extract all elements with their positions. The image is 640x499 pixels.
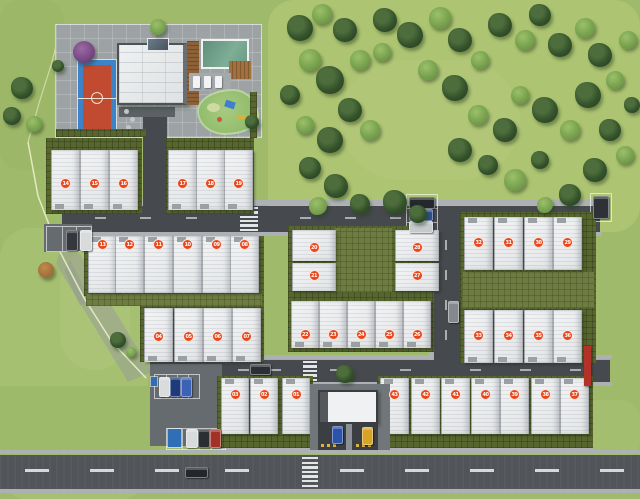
tree	[309, 197, 327, 215]
unit-number-marker[interactable]: 26	[412, 329, 423, 340]
tree	[529, 4, 551, 26]
tree	[324, 174, 348, 198]
unit-number-marker[interactable]: 01	[291, 389, 302, 400]
unit-number-marker[interactable]: 23	[328, 329, 339, 340]
tree	[299, 49, 321, 71]
tree	[429, 7, 451, 29]
tree	[397, 22, 423, 48]
tree	[110, 332, 126, 348]
unit-number-marker[interactable]: 27	[412, 270, 423, 281]
tree	[52, 60, 64, 72]
tree	[409, 205, 427, 223]
tree	[336, 365, 354, 383]
unit-number-marker[interactable]: 34	[503, 330, 514, 341]
unit-number-marker[interactable]: 25	[384, 329, 395, 340]
unit-number-marker[interactable]: 24	[356, 329, 367, 340]
unit-number-marker[interactable]: 33	[473, 330, 484, 341]
tree	[448, 28, 472, 52]
tree	[616, 146, 634, 164]
unit-number-marker[interactable]: 32	[473, 237, 484, 248]
tree	[511, 86, 529, 104]
unit-number-marker[interactable]: 22	[300, 329, 311, 340]
tree	[373, 43, 391, 61]
tree	[575, 18, 595, 38]
tree	[11, 77, 33, 99]
unit-number-marker[interactable]: 28	[412, 242, 423, 253]
unit-number-marker[interactable]: 12	[124, 239, 135, 250]
unit-number-marker[interactable]: 14	[60, 178, 71, 189]
tree	[559, 184, 581, 206]
unit-number-marker[interactable]: 08	[239, 239, 250, 250]
unit-number-marker[interactable]: 11	[153, 239, 164, 250]
tree-canopy-layer	[0, 0, 640, 499]
tree	[299, 157, 321, 179]
unit-number-marker[interactable]: 40	[480, 389, 491, 400]
unit-number-marker[interactable]: 18	[205, 178, 216, 189]
tree	[478, 155, 498, 175]
unit-number-marker[interactable]: 19	[233, 178, 244, 189]
tree	[471, 51, 489, 69]
site-plan-canvas: 1415161718191312111009080405060703020120…	[0, 0, 640, 499]
unit-number-marker[interactable]: 20	[309, 242, 320, 253]
unit-number-marker[interactable]: 17	[177, 178, 188, 189]
tree	[38, 262, 54, 278]
unit-number-marker[interactable]: 15	[89, 178, 100, 189]
tree	[588, 43, 612, 67]
tree	[287, 15, 313, 41]
tree	[442, 75, 468, 101]
unit-number-marker[interactable]: 35	[533, 330, 544, 341]
tree	[126, 347, 136, 357]
unit-number-marker[interactable]: 29	[562, 237, 573, 248]
tree	[504, 169, 526, 191]
tree	[333, 18, 357, 42]
tree	[599, 119, 621, 141]
tree	[350, 194, 370, 214]
tree	[312, 4, 332, 24]
unit-number-marker[interactable]: 05	[183, 331, 194, 342]
tree	[548, 33, 572, 57]
tree	[515, 30, 535, 50]
tree	[73, 41, 95, 63]
tree	[280, 85, 300, 105]
tree	[245, 115, 259, 129]
unit-number-marker[interactable]: 37	[569, 389, 580, 400]
unit-number-marker[interactable]: 04	[153, 331, 164, 342]
tree	[583, 158, 607, 182]
tree	[560, 120, 580, 140]
tree	[26, 116, 42, 132]
unit-number-marker[interactable]: 36	[562, 330, 573, 341]
unit-number-marker[interactable]: 06	[212, 331, 223, 342]
tree	[418, 60, 438, 80]
unit-number-marker[interactable]: 38	[540, 389, 551, 400]
unit-number-marker[interactable]: 03	[230, 389, 241, 400]
unit-number-marker[interactable]: 41	[450, 389, 461, 400]
tree	[493, 118, 517, 142]
unit-number-marker[interactable]: 02	[259, 389, 270, 400]
tree	[606, 71, 624, 89]
tree	[350, 50, 370, 70]
unit-number-marker[interactable]: 10	[182, 239, 193, 250]
unit-number-marker[interactable]: 21	[309, 270, 320, 281]
tree	[383, 190, 407, 214]
tree	[316, 66, 344, 94]
tree	[624, 97, 640, 113]
tree	[531, 151, 549, 169]
tree	[296, 116, 314, 134]
tree	[619, 31, 637, 49]
tree	[317, 127, 343, 153]
tree	[373, 8, 397, 32]
tree	[488, 13, 512, 37]
tree	[150, 19, 166, 35]
tree	[532, 97, 558, 123]
tree	[338, 98, 362, 122]
unit-number-marker[interactable]: 16	[118, 178, 129, 189]
unit-number-marker[interactable]: 07	[241, 331, 252, 342]
tree	[3, 107, 21, 125]
unit-number-marker[interactable]: 13	[97, 239, 108, 250]
unit-number-marker[interactable]: 43	[389, 389, 400, 400]
unit-number-marker[interactable]: 31	[503, 237, 514, 248]
unit-number-marker[interactable]: 39	[509, 389, 520, 400]
unit-number-marker[interactable]: 42	[420, 389, 431, 400]
tree	[575, 82, 601, 108]
tree	[468, 105, 488, 125]
tree	[360, 120, 380, 140]
tree	[537, 197, 553, 213]
tree	[448, 138, 472, 162]
unit-number-marker[interactable]: 09	[211, 239, 222, 250]
unit-number-marker[interactable]: 30	[533, 237, 544, 248]
